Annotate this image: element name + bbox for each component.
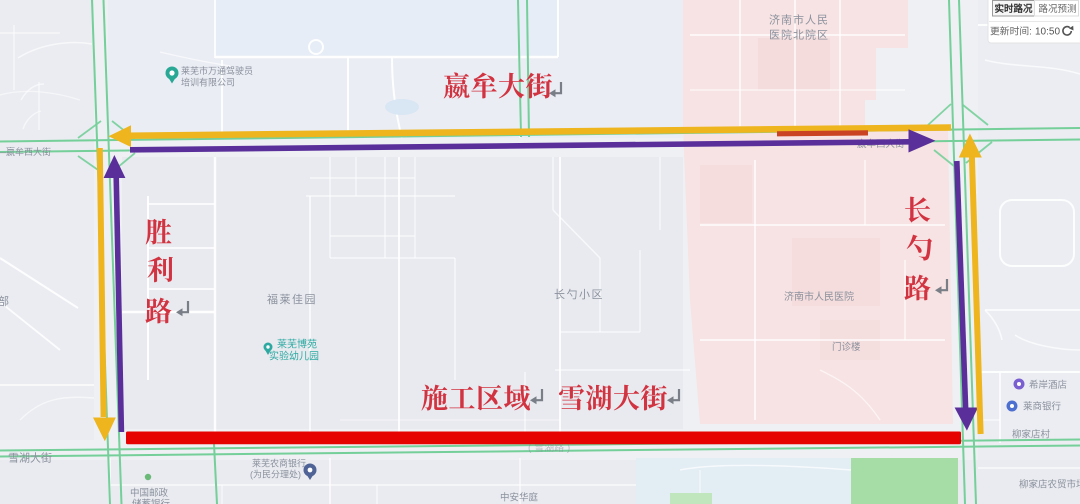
svg-text:实验幼儿园: 实验幼儿园 <box>269 348 319 363</box>
svg-text:利: 利 <box>147 249 174 288</box>
svg-text:雪湖大街: 雪湖大街 <box>558 377 668 416</box>
svg-text:更新时间:: 更新时间: <box>990 24 1032 38</box>
svg-text:济南市人民: 济南市人民 <box>769 12 829 28</box>
svg-text:希岸酒店: 希岸酒店 <box>1029 377 1067 391</box>
svg-text:勺: 勺 <box>906 227 933 266</box>
svg-text:长勺小区: 长勺小区 <box>554 286 604 302</box>
svg-text:济南市人民医院: 济南市人民医院 <box>784 288 854 303</box>
svg-text:柳家店村: 柳家店村 <box>1012 427 1051 441</box>
svg-text:路: 路 <box>145 290 172 329</box>
svg-text:医院北院区: 医院北院区 <box>769 27 829 43</box>
svg-text:储蓄银行: 储蓄银行 <box>132 496 171 504</box>
svg-text:嬴牟大街: 嬴牟大街 <box>443 65 553 104</box>
svg-text:部: 部 <box>0 293 9 309</box>
svg-text:莱商银行: 莱商银行 <box>1023 399 1062 413</box>
svg-text:10:50: 10:50 <box>1035 27 1060 38</box>
svg-text:施工区域: 施工区域 <box>421 377 531 416</box>
svg-text:中安华庭: 中安华庭 <box>500 490 539 504</box>
svg-text:福莱佳园: 福莱佳园 <box>267 291 317 307</box>
svg-text:培训有限公司: 培训有限公司 <box>181 76 235 89</box>
svg-text:柳家店农贸市场: 柳家店农贸市场 <box>1019 477 1080 491</box>
svg-text:—嬴牟西大街: —嬴牟西大街 <box>0 145 51 158</box>
svg-text:胜: 胜 <box>145 211 172 250</box>
svg-text:长: 长 <box>904 189 931 228</box>
svg-text:实时路况: 实时路况 <box>995 1 1034 15</box>
svg-text:路: 路 <box>904 267 931 306</box>
svg-text:(为民分理处): (为民分理处) <box>250 468 301 481</box>
svg-text:门诊楼: 门诊楼 <box>832 339 861 353</box>
svg-text:路况预测: 路况预测 <box>1039 1 1077 15</box>
svg-text:雪湖大街: 雪湖大街 <box>8 450 52 466</box>
